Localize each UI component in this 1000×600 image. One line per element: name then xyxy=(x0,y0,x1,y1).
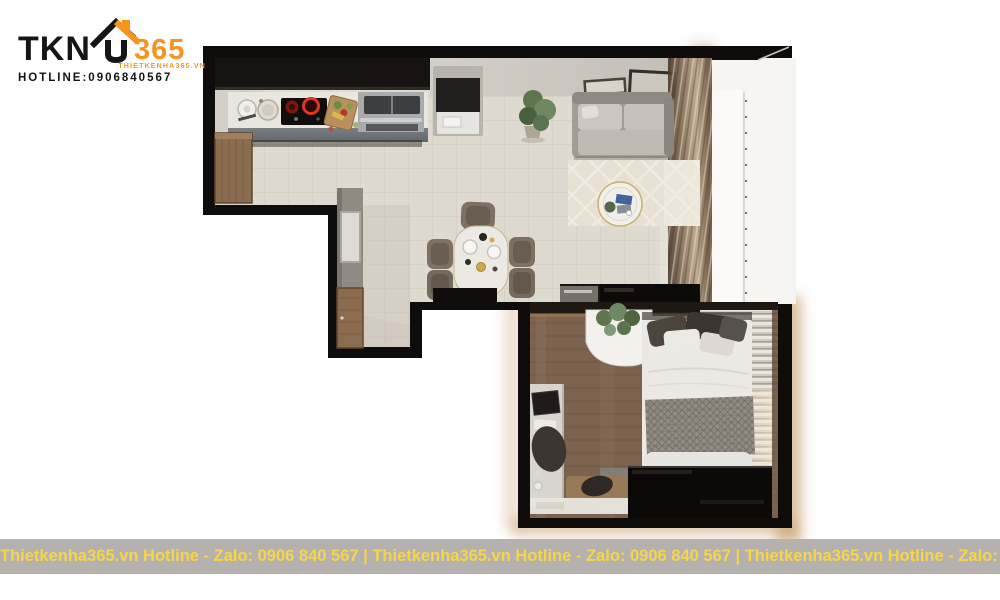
kitchen-upper-cabinets xyxy=(215,58,430,90)
brand-logo: TKN 365 THIETKENHA365.VN HOTLINE:0906840… xyxy=(18,14,228,86)
cooktop-stainless xyxy=(358,92,424,132)
dining-table xyxy=(454,226,508,296)
brand-website: THIETKENHA365.VN xyxy=(76,63,206,70)
balcony xyxy=(700,46,796,304)
entry-door xyxy=(337,288,363,348)
sofa xyxy=(572,92,674,161)
bed xyxy=(642,311,755,474)
knit-blanket xyxy=(645,396,755,458)
sink xyxy=(258,99,278,120)
brand-name-prefix: TKN xyxy=(18,32,91,66)
brand-hotline: HOTLINE:0906840567 xyxy=(18,72,172,84)
floorplan-image xyxy=(0,0,1000,600)
page: TKN 365 THIETKENHA365.VN HOTLINE:0906840… xyxy=(0,0,1000,600)
dining-console xyxy=(433,288,497,304)
fridge xyxy=(433,66,483,136)
hall-wood-panel xyxy=(215,133,252,203)
bedroom xyxy=(528,302,778,518)
coffee-table xyxy=(598,182,642,226)
brand-name-suffix: 365 xyxy=(134,36,185,65)
induction-hob xyxy=(281,98,327,125)
footer-bar: Thietkenha365.vn Hotline - Zalo: 0906 84… xyxy=(0,539,1000,574)
footer-contact-line: Thietkenha365.vn Hotline - Zalo: 0906 84… xyxy=(0,539,1000,574)
hall-partition xyxy=(337,188,363,304)
